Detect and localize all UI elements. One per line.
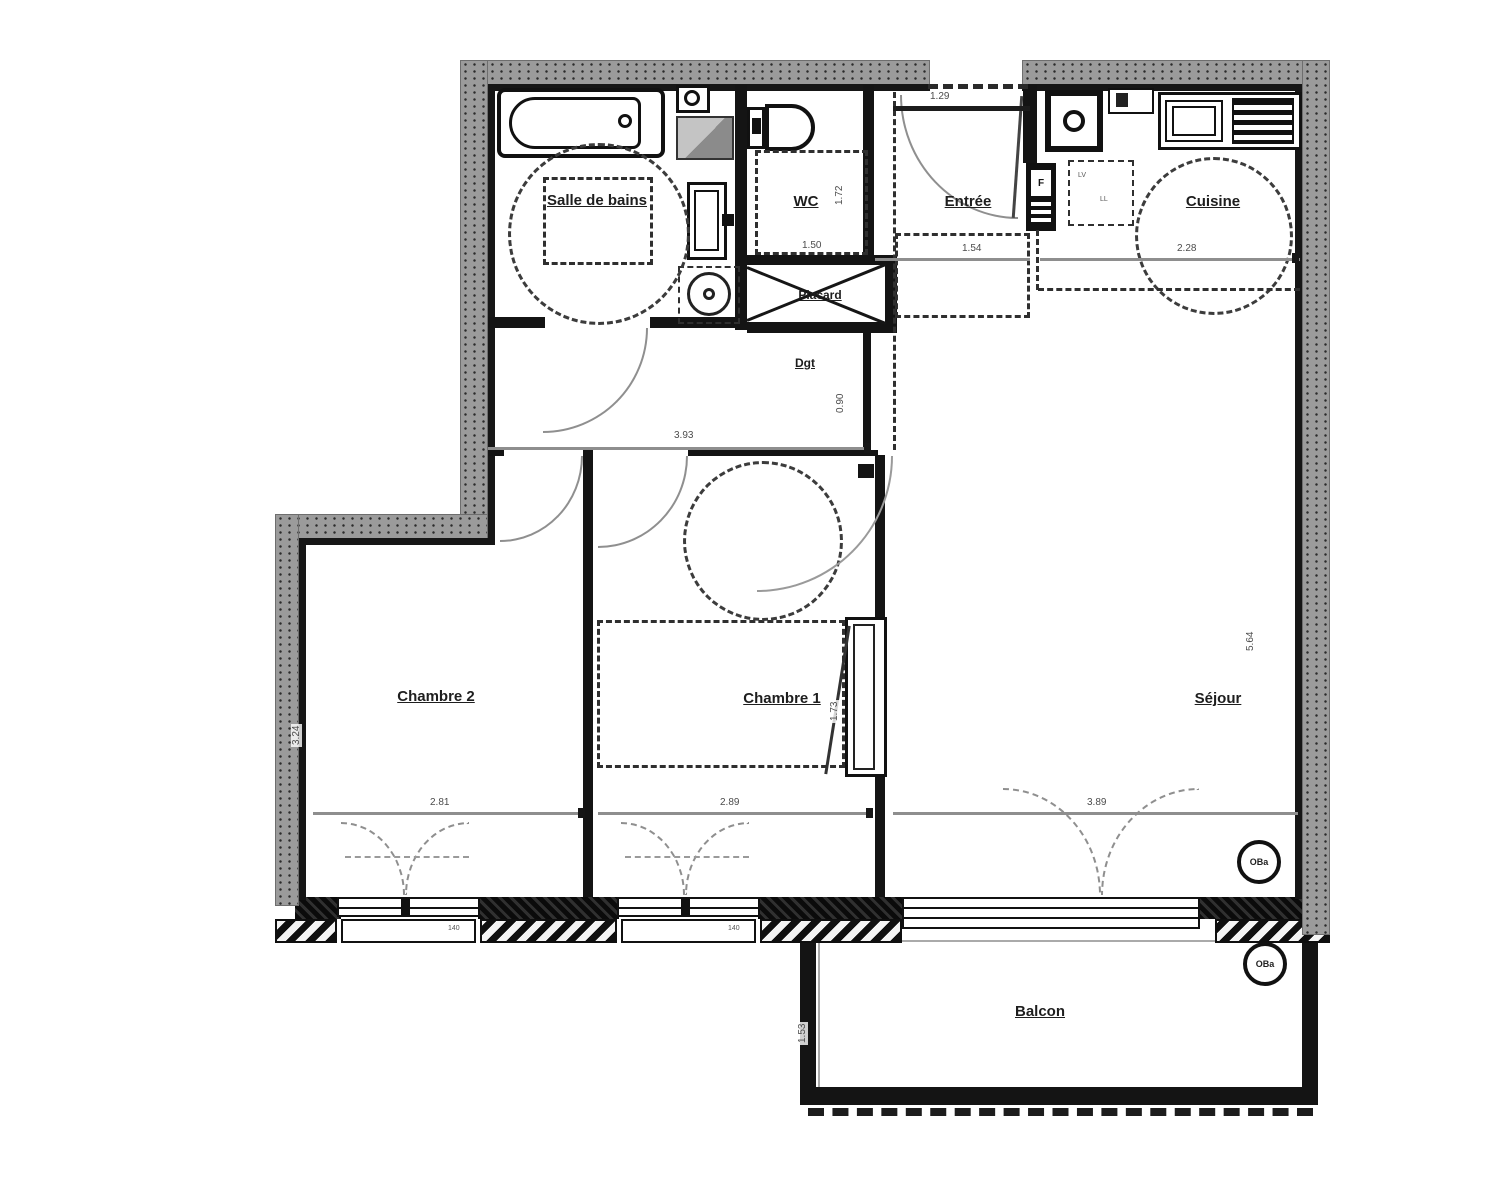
floor-plan: 140 140 <box>0 0 1500 1184</box>
sejour-marker-text: OBa <box>1250 857 1269 867</box>
facade-hatch-left <box>275 919 337 943</box>
label-salle-de-bains: Salle de bains <box>547 192 647 209</box>
top-wall-right <box>1022 60 1330 86</box>
step-wall <box>275 514 488 540</box>
right-wall <box>1302 60 1330 935</box>
dgt-length: 3.93 <box>672 430 695 441</box>
chambre1-window-mullion <box>681 897 690 917</box>
balcon-marker-text: OBa <box>1256 959 1275 969</box>
chambre2-door-arc <box>500 456 583 542</box>
chambre2-casement-right <box>405 822 469 895</box>
stove-burner <box>1063 110 1085 132</box>
washbasin-inner <box>694 190 719 251</box>
sdb-sink-top-bowl <box>684 90 700 106</box>
cuisine-turning-circle <box>1135 157 1293 315</box>
wc-depth: 1.72 <box>834 184 845 207</box>
sejour-bay-window <box>902 897 1200 929</box>
balcony-right-wall <box>1302 935 1318 1105</box>
sejour-width: 3.89 <box>1085 797 1108 808</box>
placard-bottom-wall <box>747 322 893 333</box>
entree-width: 1.54 <box>960 243 983 254</box>
entry-door-dashes <box>928 84 1028 89</box>
hood-knob <box>1116 93 1128 107</box>
kitchen-drainer <box>1232 98 1294 144</box>
chambre2-dim-line <box>313 812 583 815</box>
sejour-casement-right <box>1101 788 1199 895</box>
label-chambre2: Chambre 2 <box>397 688 475 705</box>
facade-hatch-mid2 <box>760 919 902 943</box>
kitchen-appliance-zone <box>1068 160 1134 226</box>
facade-segment-b <box>478 897 619 919</box>
sdb-bottom-wall-w <box>488 317 545 328</box>
step-inner <box>299 538 495 545</box>
chambre2-casement-left <box>341 822 405 895</box>
sdb-door-arc <box>543 328 648 433</box>
tick-ch1 <box>866 808 873 818</box>
sejour-depth: 5.64 <box>1245 630 1256 653</box>
sdb-access-zone <box>543 177 653 265</box>
label-placard: Placard <box>798 288 841 302</box>
label-entree: Entrée <box>945 193 992 210</box>
fridge-duct-grille <box>1031 202 1051 224</box>
entry-dim-line <box>893 106 1030 111</box>
chambre1-door-arc <box>598 456 688 548</box>
left-wall-lower <box>275 514 299 906</box>
left-wall-upper <box>460 60 488 530</box>
dgt-door: 0.90 <box>835 392 846 415</box>
cuisine-width: 2.28 <box>1175 243 1198 254</box>
sejour-dim-line <box>893 812 1298 815</box>
balcony-floor-edge-left <box>818 940 820 1087</box>
dgt-dim-line <box>488 447 870 450</box>
label-sejour: Séjour <box>1195 690 1242 707</box>
washbasin-tap <box>722 214 734 226</box>
balcon-depth: 1.53 <box>797 1022 808 1045</box>
balcony-bottom-wall <box>800 1087 1318 1105</box>
wc-width: 1.50 <box>800 240 823 251</box>
chambre1-casement-right <box>685 822 749 895</box>
sejour-corridor-arc <box>757 456 893 592</box>
label-dgt: Dgt <box>795 356 815 370</box>
washing-machine-hub <box>703 288 715 300</box>
tick-ch2 <box>578 808 585 818</box>
chambre1-window-size: 140 <box>728 925 740 932</box>
chambre2-depth: 3.24 <box>291 724 302 747</box>
chambre2-window-mullion <box>401 897 410 917</box>
balcon-marker: OBa <box>1243 942 1287 986</box>
entry-dim: 1.29 <box>928 91 951 102</box>
label-balcon: Balcon <box>1015 1003 1065 1020</box>
cuisine-open-boundary <box>1038 288 1300 291</box>
left-inner-lower <box>299 538 306 900</box>
chambre1-casement-chord <box>625 856 749 858</box>
tick-cuisine-e <box>1292 253 1299 263</box>
balcony-bottom-dashes <box>808 1108 1313 1116</box>
right-inner <box>1295 84 1302 899</box>
top-wall-left <box>460 60 930 86</box>
tick-dgt-e <box>864 443 871 453</box>
sejour-marker: OBa <box>1237 840 1281 884</box>
kitchen-lv-label: LV <box>1078 172 1086 179</box>
chambre1-casement-left <box>621 822 685 895</box>
label-wc: WC <box>794 193 819 210</box>
wardrobe-depth: 1.73 <box>829 700 840 723</box>
chambre2-chambre1-wall <box>583 450 593 897</box>
chambre1-width: 2.89 <box>718 797 741 808</box>
cuisine-width-line <box>1040 258 1300 261</box>
chambre2-casement-chord <box>345 856 469 858</box>
hood-box <box>1108 88 1154 114</box>
fridge-duct-window: F <box>1031 170 1051 196</box>
facade-segment-c <box>758 897 904 919</box>
toilet-bowl <box>765 104 815 151</box>
facade-segment-a <box>295 897 341 919</box>
balcony-left-wall <box>800 932 816 1105</box>
bathtub-drain <box>618 114 632 128</box>
entree-width-line <box>875 258 1030 261</box>
kitchen-sink-inner <box>1172 106 1216 136</box>
label-cuisine: Cuisine <box>1186 193 1240 210</box>
label-chambre1: Chambre 1 <box>743 690 821 707</box>
entree-cuisine-wall <box>1023 85 1037 163</box>
dgt-sejour-wall <box>863 333 871 450</box>
cuisine-open-boundary-v <box>1036 230 1039 290</box>
kitchen-ll-label: LL <box>1100 196 1108 203</box>
facade-hatch-mid1 <box>480 919 617 943</box>
chambre1-dim-line <box>598 812 870 815</box>
chambre2-window-size: 140 <box>448 925 460 932</box>
toilet-seat <box>752 118 761 134</box>
chambre2-width: 2.81 <box>428 797 451 808</box>
wardrobe-inner <box>853 624 875 770</box>
sdb-duct <box>676 116 734 160</box>
